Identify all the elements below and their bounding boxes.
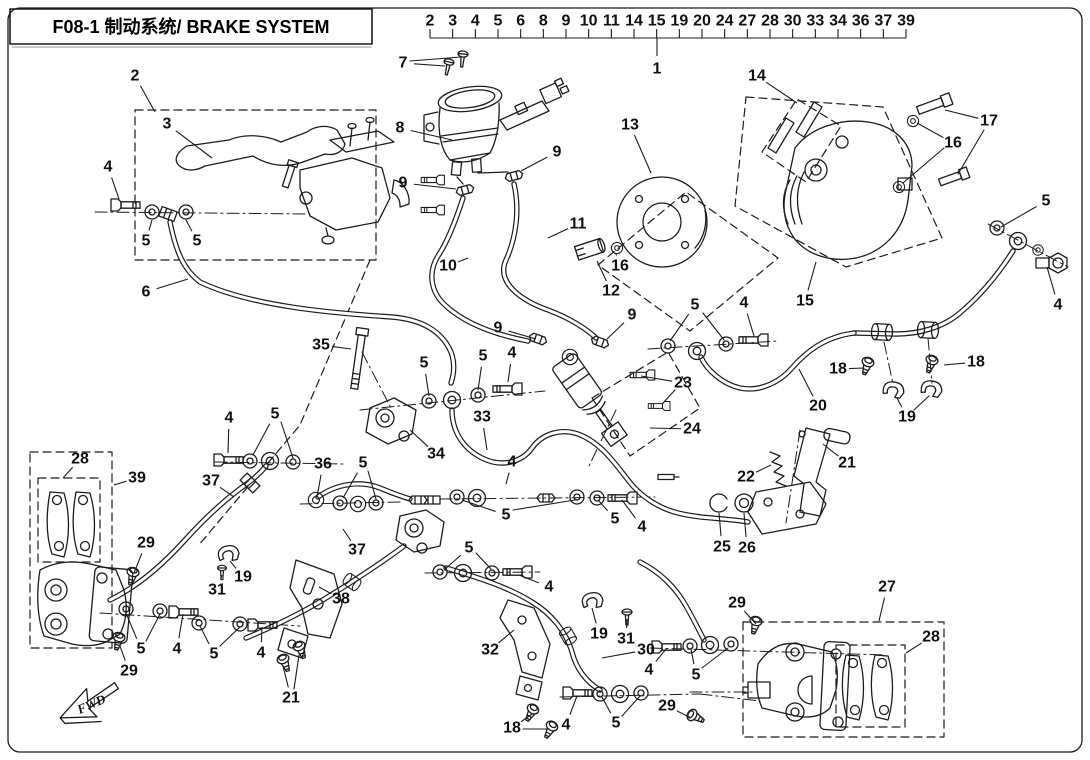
brake-lever <box>176 126 345 170</box>
header-number: 6 <box>516 13 525 30</box>
leader-line <box>508 364 510 382</box>
brake-disc <box>617 177 707 267</box>
junction-block-a <box>348 327 522 444</box>
callout-19: 19 <box>234 569 252 586</box>
callout-9: 9 <box>628 307 637 324</box>
rear-master-cylinder-box <box>592 352 700 456</box>
callout-4: 4 <box>1054 297 1063 314</box>
callout-36: 36 <box>314 456 332 473</box>
callout-29: 29 <box>658 698 676 715</box>
brake-pad <box>73 492 94 557</box>
callout-4: 4 <box>638 519 647 536</box>
callout-13: 13 <box>621 117 639 134</box>
leader-line <box>641 376 672 381</box>
callout-18: 18 <box>503 720 521 737</box>
callout-5: 5 <box>611 511 620 528</box>
header-number: 27 <box>738 13 756 30</box>
callout-4: 4 <box>173 641 182 658</box>
callout-5: 5 <box>691 297 700 314</box>
leader-line <box>747 314 754 336</box>
header-number: 10 <box>580 13 598 30</box>
leader-line <box>607 323 624 339</box>
callout-9: 9 <box>494 320 503 337</box>
callout-5: 5 <box>692 667 701 684</box>
leader-line <box>602 652 635 658</box>
leader-line <box>200 626 209 644</box>
diagram-art: FWD <box>30 50 1068 740</box>
leader-line <box>650 428 681 429</box>
leader-line <box>756 465 771 472</box>
callout-25: 25 <box>713 539 731 556</box>
callout-22: 22 <box>737 469 755 486</box>
right-hose-fittings <box>661 221 1067 399</box>
leader-line <box>616 254 617 256</box>
callout-5: 5 <box>359 455 368 472</box>
callout-4: 4 <box>740 295 749 312</box>
leader-line <box>897 398 902 407</box>
callout-28: 28 <box>922 629 940 646</box>
callout-4: 4 <box>508 454 517 471</box>
leader-line <box>592 608 596 623</box>
header-number: 14 <box>625 13 643 30</box>
callout-6: 6 <box>142 284 151 301</box>
callout-15: 15 <box>796 293 814 310</box>
callout-38: 38 <box>332 591 350 608</box>
callout-11: 11 <box>570 216 587 233</box>
leader-line <box>319 587 331 594</box>
callout-19: 19 <box>590 626 608 643</box>
callout-18: 18 <box>967 354 985 371</box>
snap-ring <box>710 494 727 512</box>
leader-line <box>186 220 192 231</box>
callout-5: 5 <box>1042 193 1051 210</box>
callout-29: 29 <box>120 663 138 680</box>
callout-5: 5 <box>502 507 511 524</box>
leader-line <box>917 123 943 138</box>
leader-line <box>63 467 73 478</box>
callout-12: 12 <box>602 283 620 300</box>
callout-7: 7 <box>399 55 408 72</box>
callout-32: 32 <box>481 642 499 659</box>
callout-21: 21 <box>282 690 300 707</box>
callout-34: 34 <box>427 446 445 463</box>
leader-line <box>253 424 270 455</box>
exploded-diagram: F08-1 制动系统/ BRAKE SYSTEM 234568910111415… <box>0 0 1090 760</box>
callout-20: 20 <box>809 398 827 415</box>
callout-4: 4 <box>645 662 654 679</box>
leader-line <box>506 473 509 484</box>
brake-fluid-reservoir <box>424 50 570 184</box>
callout-21: 21 <box>838 455 856 472</box>
header-number: 8 <box>539 13 548 30</box>
callout-5: 5 <box>271 406 280 423</box>
brake-pad <box>842 655 863 720</box>
leader-line <box>332 346 351 349</box>
callout-26: 26 <box>738 540 756 557</box>
hose-bracket-38 <box>276 560 342 673</box>
callout-5: 5 <box>465 540 474 557</box>
leader-line <box>261 627 262 642</box>
callout-14: 14 <box>748 68 766 85</box>
disc-washer <box>611 242 622 253</box>
header-number: 33 <box>806 13 824 30</box>
header-number: 30 <box>784 13 802 30</box>
mid-fitting-rows <box>433 490 637 582</box>
brake-pad <box>47 492 68 557</box>
rear-caliper-box <box>743 622 944 737</box>
callout-16: 16 <box>611 258 629 275</box>
header-number: 5 <box>494 13 503 30</box>
leader-line <box>808 262 816 290</box>
leader-line <box>414 184 456 189</box>
header-number: 2 <box>426 13 435 30</box>
callout-4: 4 <box>104 159 113 176</box>
title-box: F08-1 制动系统/ BRAKE SYSTEM <box>10 9 372 47</box>
header-number: 20 <box>693 13 711 30</box>
leader-line <box>906 643 922 653</box>
parts-diagram-page: F08-1 制动系统/ BRAKE SYSTEM 234568910111415… <box>0 0 1090 760</box>
callout-31: 31 <box>617 631 635 648</box>
callout-23: 23 <box>674 375 692 392</box>
callout-29: 29 <box>728 595 746 612</box>
header-number: 15 <box>648 13 666 30</box>
leader-line <box>670 314 689 341</box>
callout-4: 4 <box>225 410 234 427</box>
callout-10: 10 <box>439 258 457 275</box>
bottom-middle-group <box>500 591 763 740</box>
callout-8: 8 <box>396 120 405 137</box>
callout-31: 31 <box>208 582 226 599</box>
callout-39: 39 <box>128 470 146 487</box>
callout-29: 29 <box>137 535 155 552</box>
header-number: 36 <box>852 13 870 30</box>
front-caliper <box>768 93 970 260</box>
header-number: 9 <box>562 13 571 30</box>
leader-line <box>179 614 183 638</box>
leader-line <box>343 529 351 541</box>
callout-5: 5 <box>193 233 202 250</box>
callout-3: 3 <box>163 116 172 133</box>
callout-5: 5 <box>612 715 621 732</box>
callout-24: 24 <box>683 421 701 438</box>
assembly-callout-1: 1 <box>653 61 662 78</box>
header-number: 11 <box>603 13 620 30</box>
leader-line <box>176 131 212 158</box>
callout-5: 5 <box>479 348 488 365</box>
leader-line <box>879 598 884 621</box>
callout-18: 18 <box>829 361 847 378</box>
header-number: 24 <box>716 13 734 30</box>
callout-35: 35 <box>312 337 330 354</box>
leader-line <box>634 135 651 173</box>
callout-9: 9 <box>399 175 408 192</box>
leader-line <box>112 177 119 199</box>
leader-line <box>478 367 481 390</box>
leader-line <box>597 261 606 281</box>
callout-4: 4 <box>562 717 571 734</box>
leader-line <box>1001 207 1036 227</box>
level-sensor-lead <box>500 101 549 130</box>
callout-17: 17 <box>980 113 998 130</box>
header-number: 19 <box>670 13 688 30</box>
leader-line <box>799 369 813 396</box>
leader-line <box>120 646 125 661</box>
leader-line <box>691 649 694 664</box>
callout-5: 5 <box>210 646 219 663</box>
leader-line <box>602 697 611 713</box>
leader-line <box>945 110 978 118</box>
header-number: 37 <box>874 13 892 30</box>
brake-pad <box>871 655 892 720</box>
header-number: 39 <box>897 13 915 30</box>
header-number-row: 23456891011141519202427283033343637391 <box>426 13 915 78</box>
callout-5: 5 <box>142 233 151 250</box>
leader-line <box>149 220 152 230</box>
callout-28: 28 <box>71 451 89 468</box>
header-number: 4 <box>471 13 480 30</box>
hose-nut <box>590 335 610 349</box>
callout-37: 37 <box>348 542 366 559</box>
header-number: 28 <box>761 13 779 30</box>
callout-4: 4 <box>508 345 517 362</box>
disc-bolt <box>575 238 607 260</box>
leader-line <box>410 430 428 447</box>
callout-4: 4 <box>545 579 554 596</box>
pedal-spring <box>770 452 786 486</box>
leader-line <box>228 429 229 453</box>
callout-9: 9 <box>553 144 562 161</box>
leader-line <box>519 575 539 583</box>
fwd-arrow: FWD <box>54 677 128 736</box>
hose-nut <box>528 332 548 346</box>
callout-5: 5 <box>420 355 429 372</box>
leader-line <box>230 561 236 568</box>
callout-30: 30 <box>637 642 655 659</box>
callout-16: 16 <box>944 135 962 152</box>
header-number: 3 <box>448 13 457 30</box>
page-title: F08-1 制动系统/ BRAKE SYSTEM <box>52 16 329 37</box>
fwd-label: FWD <box>74 691 109 717</box>
brake-pad <box>796 102 822 137</box>
callout-19: 19 <box>898 409 916 426</box>
leader-line <box>944 363 965 365</box>
callout-33: 33 <box>473 409 491 426</box>
leader-line <box>849 368 864 369</box>
front-banjo-row <box>111 199 193 221</box>
callout-2: 2 <box>131 68 140 85</box>
leader-line <box>114 481 126 485</box>
leader-line <box>521 157 547 171</box>
leader-line <box>744 513 746 537</box>
callout-4: 4 <box>257 645 266 662</box>
hose-nut <box>455 184 474 196</box>
leader-line <box>157 279 188 289</box>
leader-line <box>484 428 487 450</box>
header-number: 34 <box>829 13 847 30</box>
leader-line <box>426 374 429 396</box>
leader-line <box>458 258 468 262</box>
leader-line <box>548 229 568 238</box>
leader-line <box>414 64 445 66</box>
callout-5: 5 <box>137 641 146 658</box>
leader-line <box>140 86 155 112</box>
leader-line <box>766 82 797 103</box>
callout-27: 27 <box>878 579 896 596</box>
callout-37: 37 <box>202 473 220 490</box>
